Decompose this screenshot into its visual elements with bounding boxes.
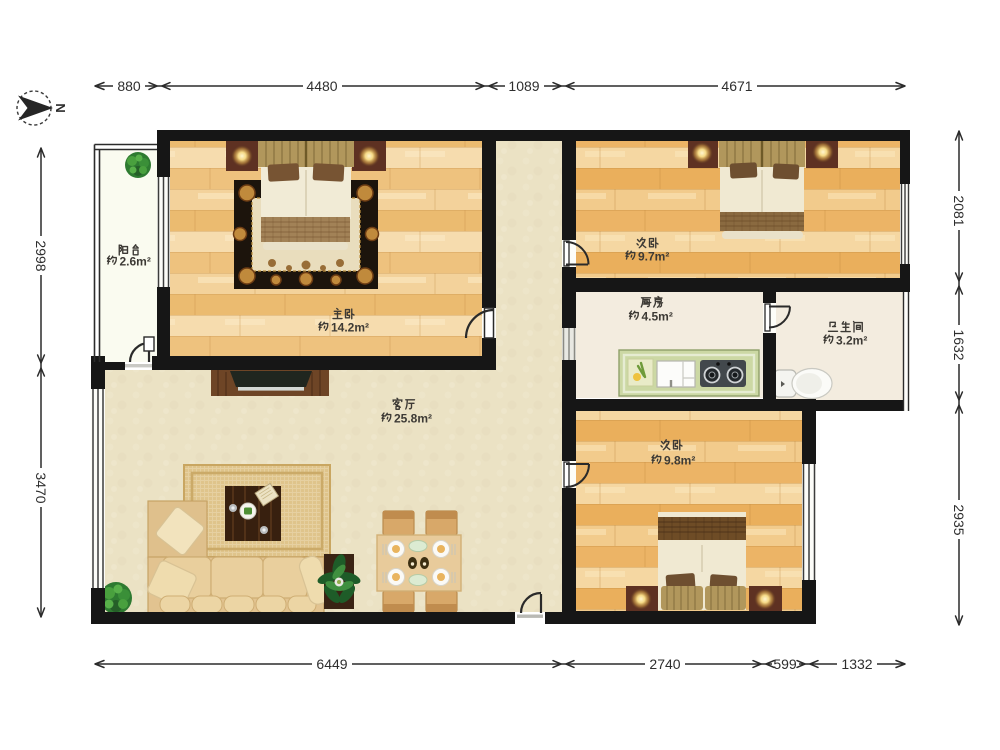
svg-text:N: N — [53, 103, 68, 112]
svg-text:25.8m²: 25.8m² — [394, 411, 432, 425]
svg-text:3.2m²: 3.2m² — [836, 333, 867, 347]
svg-text:3470: 3470 — [33, 472, 49, 503]
svg-text:4.5m²: 4.5m² — [642, 309, 673, 323]
svg-text:2081: 2081 — [951, 195, 967, 226]
svg-text:4671: 4671 — [721, 78, 752, 94]
svg-text:2.6m²: 2.6m² — [120, 254, 151, 268]
svg-text:2740: 2740 — [649, 656, 680, 672]
svg-text:9.7m²: 9.7m² — [638, 249, 669, 263]
svg-text:599: 599 — [773, 656, 797, 672]
svg-text:1632: 1632 — [951, 329, 967, 360]
svg-text:880: 880 — [117, 78, 141, 94]
svg-text:4480: 4480 — [306, 78, 337, 94]
svg-text:14.2m²: 14.2m² — [331, 320, 369, 334]
svg-text:1089: 1089 — [508, 78, 539, 94]
svg-text:6449: 6449 — [316, 656, 347, 672]
svg-text:9.8m²: 9.8m² — [664, 453, 695, 467]
svg-text:2935: 2935 — [951, 504, 967, 535]
svg-text:1332: 1332 — [841, 656, 872, 672]
svg-text:2998: 2998 — [33, 240, 49, 271]
